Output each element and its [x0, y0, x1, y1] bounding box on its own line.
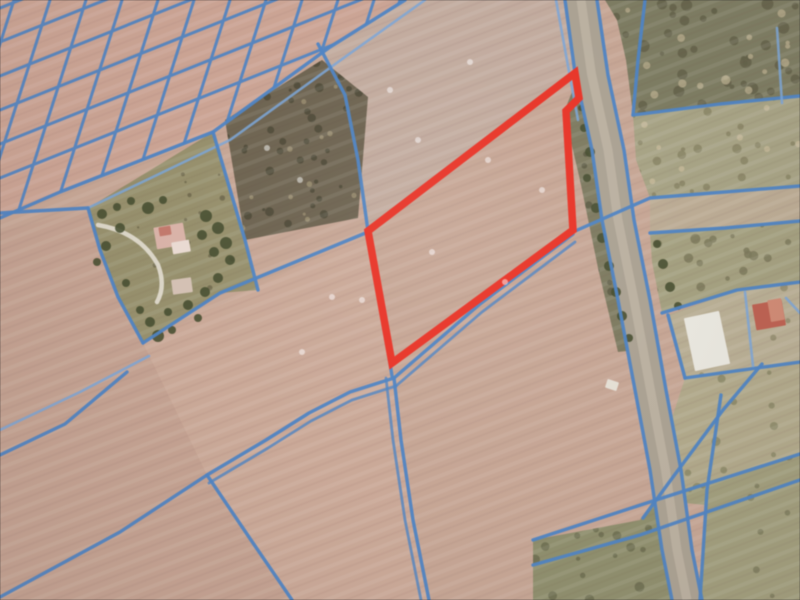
farm-building-lower: [171, 277, 193, 295]
cadastral-satellite-map: [0, 0, 800, 600]
screenshot-root: [0, 0, 800, 600]
satellite-map-viewport[interactable]: [0, 0, 800, 600]
